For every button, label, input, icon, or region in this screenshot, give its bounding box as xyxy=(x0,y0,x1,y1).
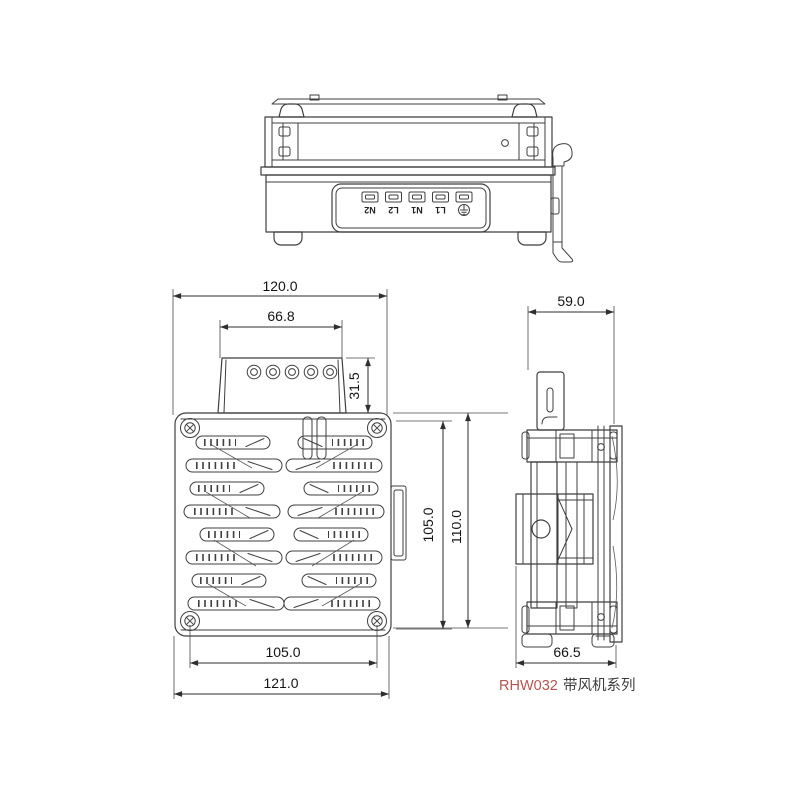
side-fan-profile xyxy=(596,426,622,642)
center-slot-1 xyxy=(303,417,312,459)
cover-vent-holes xyxy=(247,365,337,379)
side-terminal-column xyxy=(537,372,564,430)
front-view xyxy=(175,358,508,636)
center-slot-2 xyxy=(317,417,326,459)
dim-bottom-hole-spacing: 105.0 xyxy=(265,644,300,660)
side-din-block xyxy=(516,494,593,564)
side-lower-band xyxy=(522,602,617,634)
heatsink-body xyxy=(175,413,391,636)
product-series-text: 带风机系列 xyxy=(563,677,636,694)
bracket-right xyxy=(519,123,538,160)
dim-cover-height: 31.5 xyxy=(346,372,362,399)
terminal-label-n2: N2 xyxy=(364,205,376,215)
heatsink-fins-right xyxy=(284,436,384,610)
cap-screw-left xyxy=(279,104,304,117)
side-upper-band xyxy=(522,430,617,462)
dim-right-height: 105.0 xyxy=(420,507,436,542)
din-rail-clip xyxy=(551,144,573,262)
heatsink-fins-left xyxy=(184,436,284,610)
side-tab xyxy=(391,486,406,560)
orthographic-drawing: N2 L2 N1 L1 xyxy=(0,0,800,800)
side-foot-left xyxy=(522,634,552,647)
bracket-left xyxy=(279,123,298,160)
earth-ground-icon xyxy=(459,205,470,216)
product-model-text: RHW032 xyxy=(499,678,558,694)
dim-cover-width: 66.8 xyxy=(267,308,294,324)
dim-bottom-overall-width: 121.0 xyxy=(263,675,298,691)
technical-drawing-page: N2 L2 N1 L1 xyxy=(0,0,800,800)
dim-front-top-width: 120.0 xyxy=(262,278,297,294)
dim-side-top-depth: 59.0 xyxy=(557,293,584,309)
terminal-label-l2: L2 xyxy=(388,205,399,215)
dim-side-bottom-depth: 66.5 xyxy=(553,644,580,660)
terminal-block: N2 L2 N1 L1 xyxy=(332,184,490,232)
top-elevation-view: N2 L2 N1 L1 xyxy=(261,95,573,262)
side-view xyxy=(516,372,622,647)
product-label: RHW032 带风机系列 xyxy=(499,677,636,694)
terminal-cover xyxy=(218,358,346,413)
terminal-label-l1: L1 xyxy=(435,205,446,215)
corner-screws xyxy=(181,419,387,631)
foot-left xyxy=(274,232,302,245)
cap-screw-right xyxy=(512,104,537,117)
dim-right-overall-height: 110.0 xyxy=(448,510,464,544)
terminal-label-n1: N1 xyxy=(411,205,423,215)
vent-hole xyxy=(502,140,509,147)
flange-band xyxy=(261,167,555,175)
side-mid-column xyxy=(566,462,577,608)
foot-right xyxy=(518,232,546,245)
